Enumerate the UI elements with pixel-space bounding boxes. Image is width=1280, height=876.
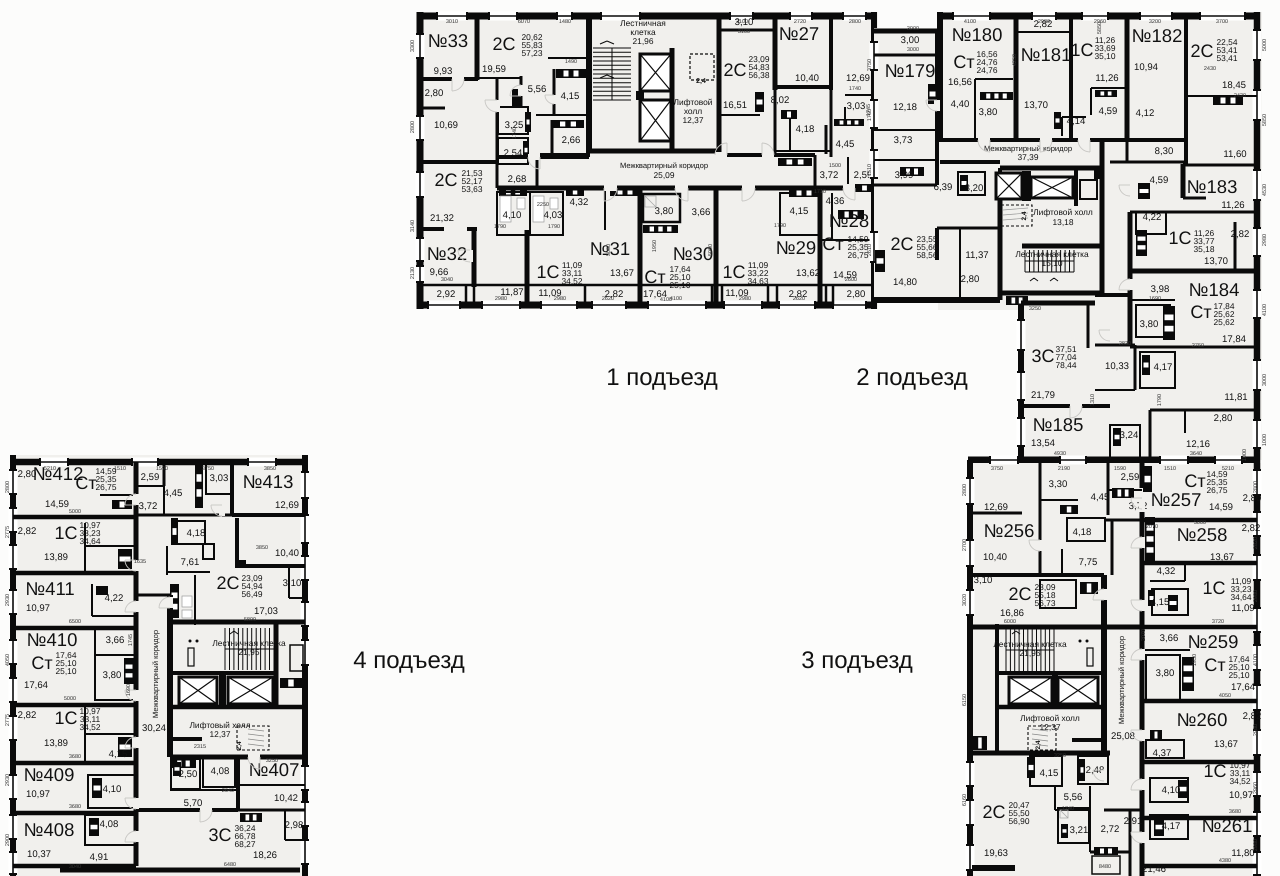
svg-text:10,97: 10,97 (1229, 790, 1253, 801)
svg-text:4,36: 4,36 (826, 196, 845, 207)
svg-text:1690: 1690 (1149, 296, 1161, 302)
svg-text:13,67: 13,67 (1210, 552, 1234, 563)
svg-text:Межквартирный коридор: Межквартирный коридор (151, 630, 160, 718)
svg-text:10,69: 10,69 (434, 120, 458, 131)
svg-text:1790: 1790 (494, 224, 506, 230)
svg-text:2,82: 2,82 (18, 710, 37, 721)
svg-text:2430: 2430 (1234, 93, 1246, 99)
svg-text:16,56: 16,56 (948, 77, 972, 88)
svg-text:2830: 2830 (1119, 341, 1131, 347)
svg-text:3250: 3250 (1029, 306, 1041, 312)
svg-text:1950: 1950 (652, 240, 658, 252)
svg-text:Лифтовой холл: Лифтовой холл (1033, 207, 1093, 217)
svg-text:3750: 3750 (1192, 343, 1204, 349)
svg-text:13,62: 13,62 (796, 268, 820, 279)
svg-text:3,00: 3,00 (901, 35, 920, 46)
svg-text:34,52: 34,52 (1230, 776, 1251, 786)
svg-text:1690: 1690 (126, 684, 132, 696)
svg-text:№258: №258 (1177, 524, 1228, 545)
svg-text:2640: 2640 (222, 788, 234, 794)
svg-text:21,32: 21,32 (430, 213, 454, 224)
svg-text:3,30: 3,30 (1049, 479, 1068, 490)
svg-text:3850: 3850 (256, 545, 268, 551)
svg-text:10,97: 10,97 (26, 789, 50, 800)
svg-text:30,24: 30,24 (142, 723, 167, 734)
svg-text:1510: 1510 (114, 466, 126, 472)
svg-text:№410: №410 (27, 629, 78, 650)
svg-text:3000: 3000 (1262, 374, 1268, 386)
svg-text:2,91: 2,91 (1124, 816, 1143, 827)
svg-text:2620: 2620 (602, 296, 614, 302)
svg-text:4,15: 4,15 (1040, 768, 1059, 779)
svg-text:3000: 3000 (907, 26, 919, 32)
svg-text:4050: 4050 (1219, 693, 1231, 699)
svg-text:3200: 3200 (1149, 19, 1161, 25)
svg-text:№181: №181 (1021, 44, 1072, 65)
svg-text:1950: 1950 (1192, 654, 1198, 666)
svg-text:6,39: 6,39 (934, 182, 953, 193)
svg-text:15,10: 15,10 (1042, 258, 1063, 268)
svg-text:5,56: 5,56 (528, 84, 547, 95)
svg-text:2,80: 2,80 (425, 88, 444, 99)
svg-text:Ст: Ст (1184, 471, 1205, 491)
svg-text:2,72: 2,72 (1101, 824, 1120, 835)
svg-text:2,59: 2,59 (141, 472, 160, 483)
svg-text:1С: 1С (722, 262, 745, 282)
svg-text:2980: 2980 (1262, 234, 1268, 246)
svg-text:3720: 3720 (1212, 619, 1224, 625)
svg-text:4,18: 4,18 (187, 528, 206, 539)
svg-text:3,66: 3,66 (106, 635, 125, 646)
svg-text:53,63: 53,63 (462, 184, 483, 194)
svg-text:4100: 4100 (964, 19, 976, 25)
svg-text:2250: 2250 (537, 202, 549, 208)
svg-text:10,94: 10,94 (1134, 62, 1159, 73)
svg-text:34,64: 34,64 (1231, 592, 1252, 602)
svg-text:56,90: 56,90 (1009, 816, 1030, 826)
svg-text:4,14: 4,14 (1067, 116, 1086, 127)
svg-text:2980: 2980 (739, 296, 751, 302)
svg-text:5,70: 5,70 (184, 798, 203, 809)
svg-text:16,51: 16,51 (723, 100, 747, 111)
svg-text:2190: 2190 (1058, 466, 1070, 472)
svg-text:4,18: 4,18 (796, 124, 815, 135)
svg-text:6160: 6160 (962, 794, 968, 806)
svg-text:11,26: 11,26 (1221, 200, 1244, 211)
svg-text:3850: 3850 (264, 466, 276, 472)
svg-text:53,41: 53,41 (1217, 53, 1238, 63)
svg-text:7,75: 7,75 (1079, 557, 1098, 568)
svg-text:1510: 1510 (1164, 466, 1176, 472)
svg-text:2720: 2720 (794, 19, 806, 25)
svg-text:2,50: 2,50 (179, 769, 198, 780)
svg-text:3,03: 3,03 (847, 101, 866, 112)
svg-text:5000: 5000 (64, 696, 76, 702)
svg-text:3,10: 3,10 (283, 578, 302, 589)
svg-text:2,92: 2,92 (437, 289, 456, 300)
svg-text:25,10: 25,10 (1229, 670, 1250, 680)
svg-text:13,89: 13,89 (44, 738, 68, 749)
svg-text:4380: 4380 (1219, 858, 1231, 864)
svg-text:1310: 1310 (1090, 394, 1096, 406)
svg-text:4,08: 4,08 (100, 819, 119, 830)
svg-text:26,75: 26,75 (848, 250, 869, 260)
svg-text:5000: 5000 (606, 244, 612, 256)
svg-text:№179: №179 (885, 60, 936, 81)
svg-text:4,15: 4,15 (109, 749, 128, 760)
svg-text:4250: 4250 (1012, 54, 1018, 66)
svg-text:№32: №32 (427, 243, 467, 264)
svg-text:2070: 2070 (1146, 524, 1158, 530)
svg-text:4 подъезд: 4 подъезд (353, 647, 465, 674)
svg-text:10,37: 10,37 (27, 849, 51, 860)
svg-text:4,59: 4,59 (1099, 106, 1118, 117)
svg-text:2820: 2820 (1253, 537, 1259, 549)
svg-text:4050: 4050 (5, 654, 11, 666)
svg-text:2800: 2800 (5, 481, 11, 493)
svg-text:3000: 3000 (907, 47, 919, 53)
svg-text:3,72: 3,72 (139, 501, 158, 512)
svg-text:8480: 8480 (1099, 864, 1111, 870)
svg-text:2,54: 2,54 (504, 148, 523, 159)
svg-text:2315: 2315 (194, 744, 206, 750)
svg-text:25,10: 25,10 (670, 280, 691, 290)
svg-text:3250: 3250 (266, 758, 278, 764)
svg-text:2610: 2610 (867, 244, 873, 256)
svg-text:4,32: 4,32 (1157, 566, 1176, 577)
svg-text:4,15: 4,15 (790, 206, 809, 217)
svg-text:№28: №28 (829, 210, 869, 231)
svg-text:13,67: 13,67 (610, 268, 634, 279)
svg-text:4,40: 4,40 (951, 99, 970, 110)
svg-text:1710: 1710 (814, 189, 826, 195)
svg-text:2,82: 2,82 (1231, 229, 1250, 240)
svg-text:4,12: 4,12 (1136, 108, 1155, 119)
svg-text:4,45: 4,45 (164, 488, 183, 499)
svg-text:Ст: Ст (953, 52, 974, 72)
svg-text:14,59: 14,59 (1209, 502, 1233, 513)
svg-text:6480: 6480 (224, 862, 236, 868)
svg-text:2,82: 2,82 (1243, 711, 1262, 722)
svg-text:35,18: 35,18 (1194, 244, 1215, 254)
svg-text:2980: 2980 (495, 296, 507, 302)
svg-text:4,10: 4,10 (103, 784, 122, 795)
svg-text:3,10: 3,10 (974, 575, 993, 586)
svg-text:1740: 1740 (512, 127, 518, 139)
svg-text:3,66: 3,66 (1160, 633, 1179, 644)
svg-text:56,49: 56,49 (242, 589, 263, 599)
svg-text:78,44: 78,44 (1056, 360, 1077, 370)
svg-text:3,66: 3,66 (692, 207, 711, 218)
svg-text:3700: 3700 (1216, 19, 1228, 25)
svg-text:2980: 2980 (1253, 839, 1259, 851)
svg-text:2980: 2980 (1253, 590, 1259, 602)
svg-text:1000: 1000 (1262, 434, 1268, 446)
svg-text:1С: 1С (536, 262, 559, 282)
svg-text:3,24: 3,24 (1120, 430, 1139, 441)
svg-text:26,75: 26,75 (1207, 485, 1228, 495)
svg-text:6000: 6000 (1004, 619, 1016, 625)
svg-text:2С: 2С (492, 34, 515, 54)
svg-text:2980: 2980 (1253, 724, 1259, 736)
svg-text:Межквартирный коридор: Межквартирный коридор (1117, 636, 1126, 724)
svg-text:10,40: 10,40 (983, 552, 1007, 563)
svg-text:17,03: 17,03 (254, 606, 278, 617)
svg-text:3300: 3300 (410, 40, 416, 52)
svg-text:3010: 3010 (446, 19, 458, 25)
svg-text:3640: 3640 (1190, 451, 1202, 457)
svg-text:12,37: 12,37 (210, 729, 231, 739)
svg-text:4,59: 4,59 (1150, 175, 1169, 186)
svg-text:13,18: 13,18 (1053, 217, 1074, 227)
svg-text:5000: 5000 (69, 509, 81, 515)
svg-text:12,18: 12,18 (893, 102, 917, 113)
svg-text:2930: 2930 (5, 594, 11, 606)
svg-text:2С: 2С (982, 802, 1005, 822)
svg-text:4,37: 4,37 (1153, 748, 1172, 759)
svg-text:3750: 3750 (991, 466, 1003, 472)
svg-text:16,86: 16,86 (1000, 608, 1024, 619)
svg-text:10,97: 10,97 (26, 603, 50, 614)
svg-text:Ст: Ст (31, 653, 52, 673)
svg-text:5210: 5210 (44, 466, 56, 472)
svg-text:№182: №182 (1132, 25, 1183, 46)
svg-text:3,80: 3,80 (655, 206, 674, 217)
svg-text:4,08: 4,08 (211, 766, 230, 777)
svg-text:11,09: 11,09 (1231, 603, 1254, 614)
svg-text:10,40: 10,40 (795, 73, 819, 84)
svg-text:3,80: 3,80 (103, 670, 122, 681)
svg-text:2,82: 2,82 (1242, 523, 1261, 534)
svg-text:1С: 1С (54, 708, 77, 728)
svg-text:3,20: 3,20 (965, 183, 984, 194)
svg-text:3040: 3040 (69, 864, 81, 870)
svg-text:2620: 2620 (793, 296, 805, 302)
svg-text:№256: №256 (984, 520, 1035, 541)
svg-text:2С: 2С (890, 234, 913, 254)
svg-text:2,80: 2,80 (961, 274, 980, 285)
svg-text:2С: 2С (1190, 41, 1213, 61)
svg-text:3020: 3020 (962, 594, 968, 606)
svg-text:№29: №29 (776, 237, 816, 258)
svg-text:3680: 3680 (69, 754, 81, 760)
svg-text:2С: 2С (216, 573, 239, 593)
svg-text:12,37: 12,37 (1040, 722, 1061, 732)
svg-text:Ст: Ст (1204, 655, 1225, 675)
svg-text:34,52: 34,52 (562, 276, 583, 286)
svg-text:25,09: 25,09 (654, 170, 675, 180)
svg-text:2960: 2960 (1253, 782, 1259, 794)
svg-text:№413: №413 (243, 471, 294, 492)
svg-text:2800: 2800 (1253, 481, 1259, 493)
svg-text:17,64: 17,64 (1231, 682, 1256, 693)
svg-text:14,80: 14,80 (893, 277, 917, 288)
svg-text:4100: 4100 (1262, 304, 1268, 316)
svg-text:2,4: 2,4 (1035, 740, 1042, 749)
svg-text:2,4: 2,4 (236, 741, 243, 750)
svg-text:4930: 4930 (1054, 451, 1066, 457)
svg-text:№260: №260 (1177, 709, 1228, 730)
svg-text:2070: 2070 (1141, 629, 1147, 641)
svg-text:5210: 5210 (1222, 466, 1234, 472)
svg-text:Ст: Ст (644, 267, 665, 287)
svg-text:9,93: 9,93 (434, 66, 453, 77)
svg-text:3,21: 3,21 (1070, 825, 1089, 836)
svg-text:1740: 1740 (849, 86, 861, 92)
svg-text:2,68: 2,68 (508, 174, 527, 185)
svg-text:17,64: 17,64 (24, 680, 49, 691)
svg-text:10,42: 10,42 (274, 793, 298, 804)
svg-text:5000: 5000 (708, 244, 714, 256)
svg-text:№183: №183 (1187, 176, 1238, 197)
svg-text:34,64: 34,64 (80, 536, 101, 546)
svg-text:3,80: 3,80 (1140, 319, 1159, 330)
svg-text:3100: 3100 (738, 29, 750, 35)
svg-text:17,84: 17,84 (1222, 334, 1247, 345)
svg-text:13,67: 13,67 (1214, 739, 1238, 750)
svg-text:34,52: 34,52 (80, 722, 101, 732)
svg-text:14,59: 14,59 (45, 499, 69, 510)
svg-text:11,80: 11,80 (1231, 848, 1254, 859)
svg-text:1590: 1590 (1114, 466, 1126, 472)
svg-text:№411: №411 (25, 578, 74, 599)
svg-text:8,30: 8,30 (1155, 146, 1174, 157)
svg-text:2800: 2800 (849, 19, 861, 25)
svg-text:1С: 1С (54, 523, 77, 543)
svg-text:№257: №257 (1151, 489, 1202, 510)
svg-text:5000: 5000 (1262, 39, 1268, 51)
svg-text:5000: 5000 (1194, 520, 1206, 526)
svg-text:4,91: 4,91 (90, 852, 109, 863)
svg-text:1790: 1790 (774, 223, 786, 229)
svg-text:34,63: 34,63 (748, 276, 769, 286)
svg-text:2,82: 2,82 (18, 526, 37, 537)
svg-text:10,33: 10,33 (1105, 361, 1129, 372)
svg-text:2С: 2С (434, 170, 457, 190)
svg-text:3 подъезд: 3 подъезд (801, 647, 913, 674)
svg-text:21,95: 21,95 (239, 647, 260, 657)
svg-text:3250: 3250 (1054, 753, 1066, 759)
svg-text:1490: 1490 (565, 59, 577, 65)
svg-text:2775: 2775 (5, 714, 11, 726)
svg-text:Ст: Ст (1190, 302, 1211, 322)
svg-text:№259: №259 (1188, 631, 1239, 652)
svg-text:№261: №261 (1202, 815, 1253, 836)
svg-text:68,27: 68,27 (235, 839, 256, 849)
svg-text:2800: 2800 (962, 484, 968, 496)
svg-text:5899: 5899 (244, 617, 256, 623)
svg-text:18,45: 18,45 (1222, 80, 1246, 91)
svg-text:2775: 2775 (5, 526, 11, 538)
svg-text:1500: 1500 (829, 163, 841, 169)
svg-text:2,4: 2,4 (1021, 211, 1028, 220)
svg-text:4,10: 4,10 (503, 210, 522, 221)
svg-text:3750: 3750 (867, 59, 873, 71)
svg-text:3,03: 3,03 (210, 473, 229, 484)
svg-text:12,37: 12,37 (683, 115, 704, 125)
svg-text:11,60: 11,60 (1223, 149, 1246, 160)
svg-text:2980: 2980 (1038, 19, 1050, 25)
svg-text:1590: 1590 (156, 466, 168, 472)
svg-text:Ст: Ст (822, 234, 843, 254)
svg-text:3,80: 3,80 (1156, 668, 1175, 679)
svg-text:3680: 3680 (69, 804, 81, 810)
svg-text:1790: 1790 (548, 224, 560, 230)
svg-text:4,15: 4,15 (561, 91, 580, 102)
svg-text:13,54: 13,54 (1031, 438, 1056, 449)
svg-text:Ст: Ст (75, 473, 96, 493)
svg-text:3040: 3040 (441, 277, 453, 283)
svg-text:2,66: 2,66 (562, 135, 581, 146)
svg-text:56,38: 56,38 (749, 70, 770, 80)
svg-text:3100: 3100 (736, 19, 748, 25)
svg-text:18,26: 18,26 (253, 850, 277, 861)
svg-text:Межквартирный коридор: Межквартирный коридор (620, 161, 708, 170)
svg-text:2,80: 2,80 (847, 289, 866, 300)
svg-text:3680: 3680 (1229, 809, 1241, 815)
svg-text:12,16: 12,16 (1186, 439, 1210, 450)
svg-text:2С: 2С (723, 60, 746, 80)
svg-text:25,62: 25,62 (1214, 317, 1235, 327)
svg-text:1С: 1С (1203, 761, 1226, 781)
svg-text:4,03: 4,03 (544, 210, 563, 221)
svg-text:№180: №180 (952, 24, 1003, 45)
svg-text:6150: 6150 (962, 694, 968, 706)
svg-text:1740: 1740 (1062, 806, 1074, 812)
svg-text:4,22: 4,22 (105, 593, 124, 604)
svg-text:3,73: 3,73 (894, 135, 913, 146)
svg-text:1С: 1С (1070, 40, 1093, 60)
svg-text:13,70: 13,70 (1204, 256, 1228, 267)
svg-text:1С: 1С (1168, 228, 1191, 248)
svg-text:2,80: 2,80 (18, 469, 37, 480)
svg-text:37,39: 37,39 (1018, 152, 1039, 162)
svg-text:3,80: 3,80 (979, 107, 998, 118)
svg-text:1765: 1765 (867, 109, 873, 121)
svg-text:4,45: 4,45 (1091, 492, 1110, 503)
svg-text:2С: 2С (1008, 584, 1031, 604)
svg-text:1790: 1790 (1157, 394, 1163, 406)
svg-text:№408: №408 (24, 819, 75, 840)
svg-text:21,79: 21,79 (1031, 390, 1055, 401)
svg-text:4,45: 4,45 (836, 139, 855, 150)
svg-text:3,72: 3,72 (820, 170, 839, 181)
svg-text:4530: 4530 (1262, 184, 1268, 196)
svg-text:13,70: 13,70 (1024, 100, 1048, 111)
svg-text:11,26: 11,26 (1095, 73, 1118, 84)
svg-text:№184: №184 (1189, 279, 1240, 300)
svg-text:1510: 1510 (867, 164, 873, 176)
svg-text:5,56: 5,56 (1064, 792, 1083, 803)
svg-text:4,15: 4,15 (1151, 597, 1170, 608)
svg-text:2600: 2600 (845, 277, 857, 283)
svg-text:2700: 2700 (962, 539, 968, 551)
svg-text:25,10: 25,10 (56, 666, 77, 676)
svg-text:4,17: 4,17 (1162, 821, 1181, 832)
svg-text:12,69: 12,69 (846, 73, 870, 84)
svg-text:11,81: 11,81 (1224, 392, 1247, 403)
svg-text:4,17: 4,17 (1154, 362, 1173, 373)
svg-text:21,96: 21,96 (633, 36, 654, 46)
svg-text:1480: 1480 (559, 19, 571, 25)
svg-text:2,80: 2,80 (1243, 493, 1262, 504)
svg-text:2,98: 2,98 (285, 820, 304, 831)
svg-text:21,96: 21,96 (1020, 648, 1041, 658)
svg-text:57,23: 57,23 (522, 48, 543, 58)
svg-text:56,73: 56,73 (1035, 598, 1056, 608)
svg-text:2130: 2130 (410, 267, 416, 279)
svg-text:6500: 6500 (69, 619, 81, 625)
